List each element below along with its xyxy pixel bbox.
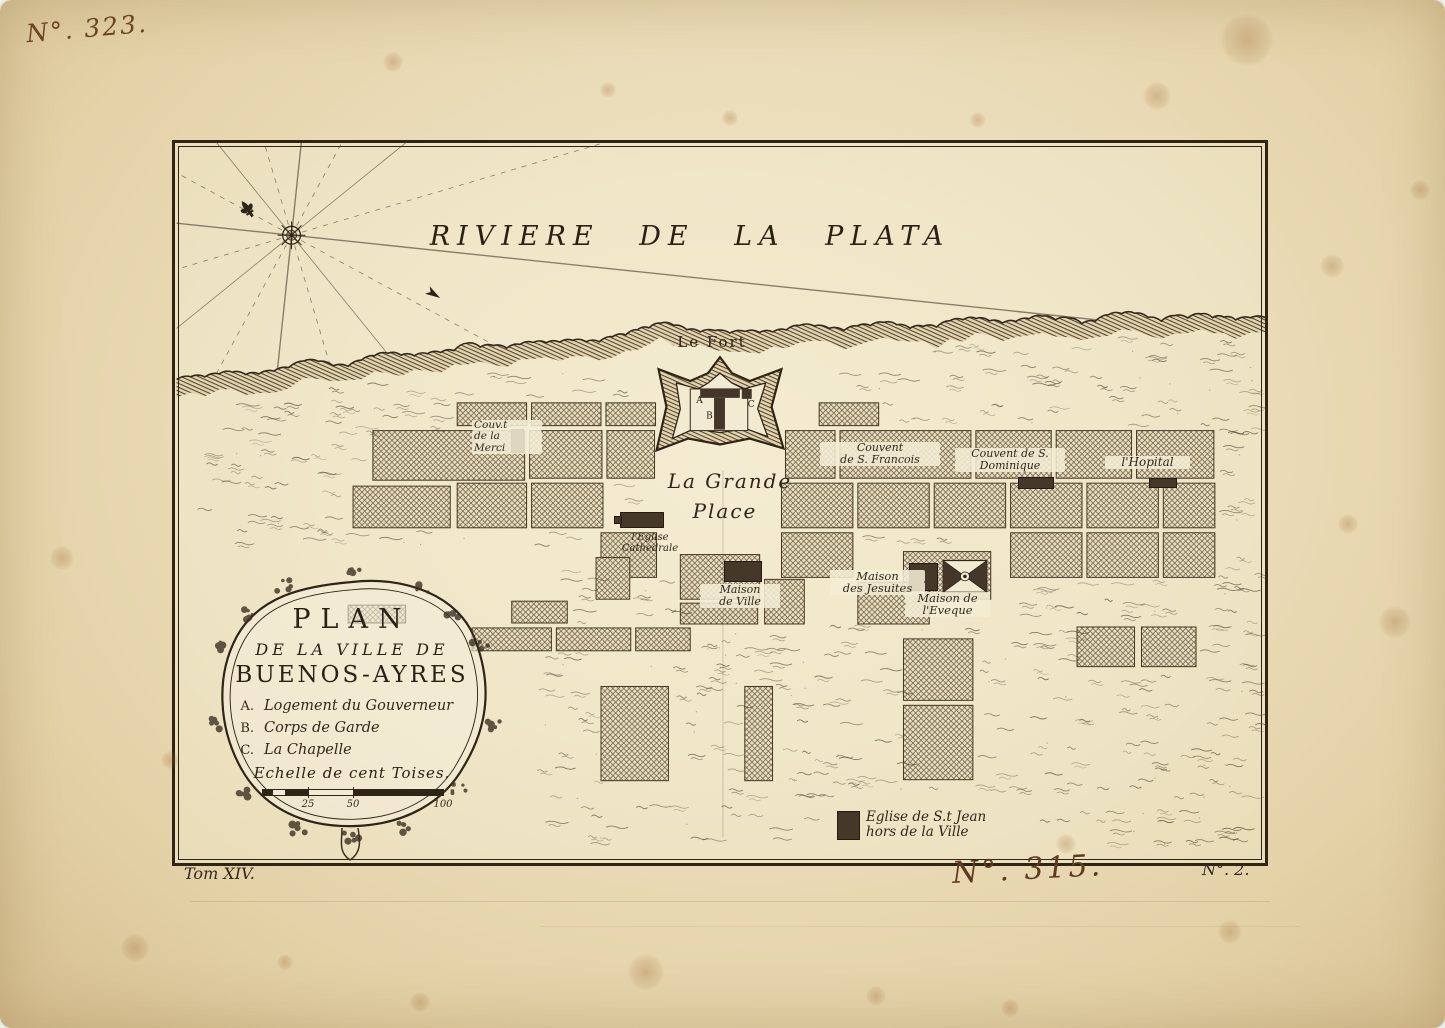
legend-label: Logement du Gouverneur: [264, 698, 453, 714]
scale-title: Echelle de cent Toises.: [192, 764, 512, 782]
label-couvent-s-dominique: Couvent de S. Dominique: [955, 448, 1065, 472]
city-block: [1163, 483, 1215, 528]
label-hopital: l'Hopital: [1105, 456, 1190, 469]
plate-scratch: [190, 901, 1270, 902]
city-block: [1141, 627, 1196, 667]
plate-number-handwritten: N°. 315.: [951, 848, 1104, 891]
title-cartouche: PLAN DE LA VILLE DE BUENOS-AYRES A. Loge…: [192, 556, 512, 868]
label-couvent-s-francois: Couvent de S. Francois: [820, 442, 940, 466]
fort-label: Le Fort: [662, 334, 762, 350]
fort-building-a: [700, 389, 740, 398]
foxing-spot: [1001, 999, 1019, 1017]
city-block: [819, 403, 879, 426]
rhumb-line: [175, 235, 292, 587]
legend-key: B.: [236, 721, 254, 736]
scale-segment: [353, 790, 443, 795]
label-maison-de-ville: Maison de Ville: [700, 584, 780, 608]
label-couvent-merci: Couv.t de la Merci: [472, 420, 542, 454]
city-block: [1163, 533, 1215, 578]
foxing-spot: [50, 546, 74, 570]
building-couvent-dominique: [1018, 477, 1054, 489]
foxing-spot: [722, 110, 738, 126]
foxing-spot: [121, 934, 149, 962]
label-eglise-cathedrale: l'Eglise Cathedrale: [605, 533, 695, 555]
city-block: [934, 483, 1005, 528]
foxing-spot: [1143, 82, 1171, 110]
scale-tick: [308, 787, 309, 798]
city-block: [606, 403, 656, 426]
scale-segment: [263, 790, 273, 795]
scale-segment: [285, 790, 308, 795]
foxing-spot: [410, 992, 430, 1012]
label-line: Dominique: [955, 460, 1065, 472]
legend-label: Corps de Garde: [264, 720, 380, 736]
city-block: [858, 483, 929, 528]
label-line: de S. Francois: [820, 454, 940, 466]
river-title: RIVIERE DE LA PLATA: [400, 222, 980, 251]
foxing-spot: [1379, 606, 1411, 638]
plate-scratch: [540, 926, 1300, 927]
city-block: [512, 601, 568, 623]
plate-number-printed: N°. 2.: [1202, 860, 1249, 879]
label-line: l'Eveque: [905, 604, 990, 616]
label-eglise-st-jean: Eglise de S.t Jean hors de la Ville: [866, 810, 1016, 839]
fort-letter-b: B: [706, 412, 713, 422]
city-block: [532, 483, 603, 528]
label-line: hors de la Ville: [866, 825, 1016, 840]
building-hopital: [1149, 478, 1177, 488]
eveque-star-block: [943, 561, 987, 593]
rhumb-line: [175, 143, 292, 235]
cartouche-title-line1: PLAN: [192, 604, 512, 635]
legend-key: A.: [236, 699, 254, 714]
building-cathedrale: [620, 512, 664, 528]
legend-row-b: B. Corps de Garde: [236, 720, 486, 736]
label-line: Eglise de S.t Jean: [866, 810, 1016, 825]
rhumb-line: [175, 143, 292, 235]
building-cathedrale-apse: [614, 516, 622, 524]
label-maison-de-l-eveque: Maison de l'Eveque: [905, 592, 990, 617]
city-block: [596, 558, 630, 600]
foxing-spot: [277, 954, 293, 970]
fort-building-c: [742, 389, 752, 399]
foxing-spot: [628, 954, 664, 990]
rhumb-line: [175, 143, 292, 235]
fort-plan: A B C: [657, 357, 784, 450]
map-sheet: N°. 323.: [0, 0, 1445, 1028]
label-line: de la: [472, 431, 542, 442]
scale-tick-label: 100: [433, 799, 452, 810]
city-block: [556, 628, 630, 651]
legend-label: La Chapelle: [264, 742, 352, 758]
scale-tick-label: 25: [302, 799, 315, 810]
cartouche-title-line2: DE LA VILLE DE: [192, 640, 512, 659]
city-block: [457, 483, 526, 528]
city-block: [1087, 483, 1158, 528]
rhumb-line: [175, 143, 292, 235]
fort-building-b: [714, 398, 725, 430]
city-block: [1056, 431, 1131, 479]
handwritten-collection-number: N°. 323.: [25, 9, 149, 49]
fort-letter-a: A: [695, 396, 703, 406]
scale-tick-label: 50: [347, 799, 360, 810]
foxing-spot: [383, 52, 403, 72]
label-line: Cathedrale: [605, 544, 695, 555]
foxing-spot: [970, 112, 986, 128]
city-block: [903, 639, 972, 700]
fort-letter-c: C: [748, 400, 755, 410]
foxing-spot: [600, 82, 616, 98]
legend-row-a: A. Logement du Gouverneur: [236, 698, 486, 714]
fleur-de-lis-icon: [236, 197, 258, 220]
direction-arrow-icon: [427, 288, 441, 300]
label-line: Merci: [472, 443, 542, 454]
city-block: [1011, 483, 1082, 528]
building-eglise-st-jean: [837, 811, 860, 840]
city-block: [745, 686, 773, 780]
city-block: [353, 486, 450, 528]
scale-bar: 25 50 100: [262, 789, 444, 796]
foxing-spot: [1410, 180, 1430, 200]
building-maison-de-ville: [724, 561, 762, 582]
scale-tick: [353, 787, 354, 798]
city-block: [903, 705, 972, 779]
grande-place-label-line2: Place: [660, 501, 790, 523]
city-block: [1087, 533, 1158, 578]
city-block: [1011, 533, 1082, 578]
legend-row-c: C. La Chapelle: [236, 742, 486, 758]
city-block: [601, 686, 668, 780]
tome-number: Tom XIV.: [184, 864, 255, 883]
foxing-spot: [1320, 254, 1344, 278]
legend-key: C.: [236, 743, 254, 758]
foxing-spot: [1338, 514, 1358, 534]
cartouche-title-line3: BUENOS-AYRES: [192, 662, 512, 688]
label-line: de Ville: [700, 596, 780, 608]
foxing-spot: [1218, 920, 1242, 944]
label-line: l'Hopital: [1105, 456, 1190, 469]
foxing-spot: [866, 986, 886, 1006]
city-block: [636, 628, 691, 651]
foxing-spot: [1221, 14, 1273, 66]
city-block: [607, 431, 655, 479]
grande-place-label-line1: La Grande: [660, 471, 800, 493]
